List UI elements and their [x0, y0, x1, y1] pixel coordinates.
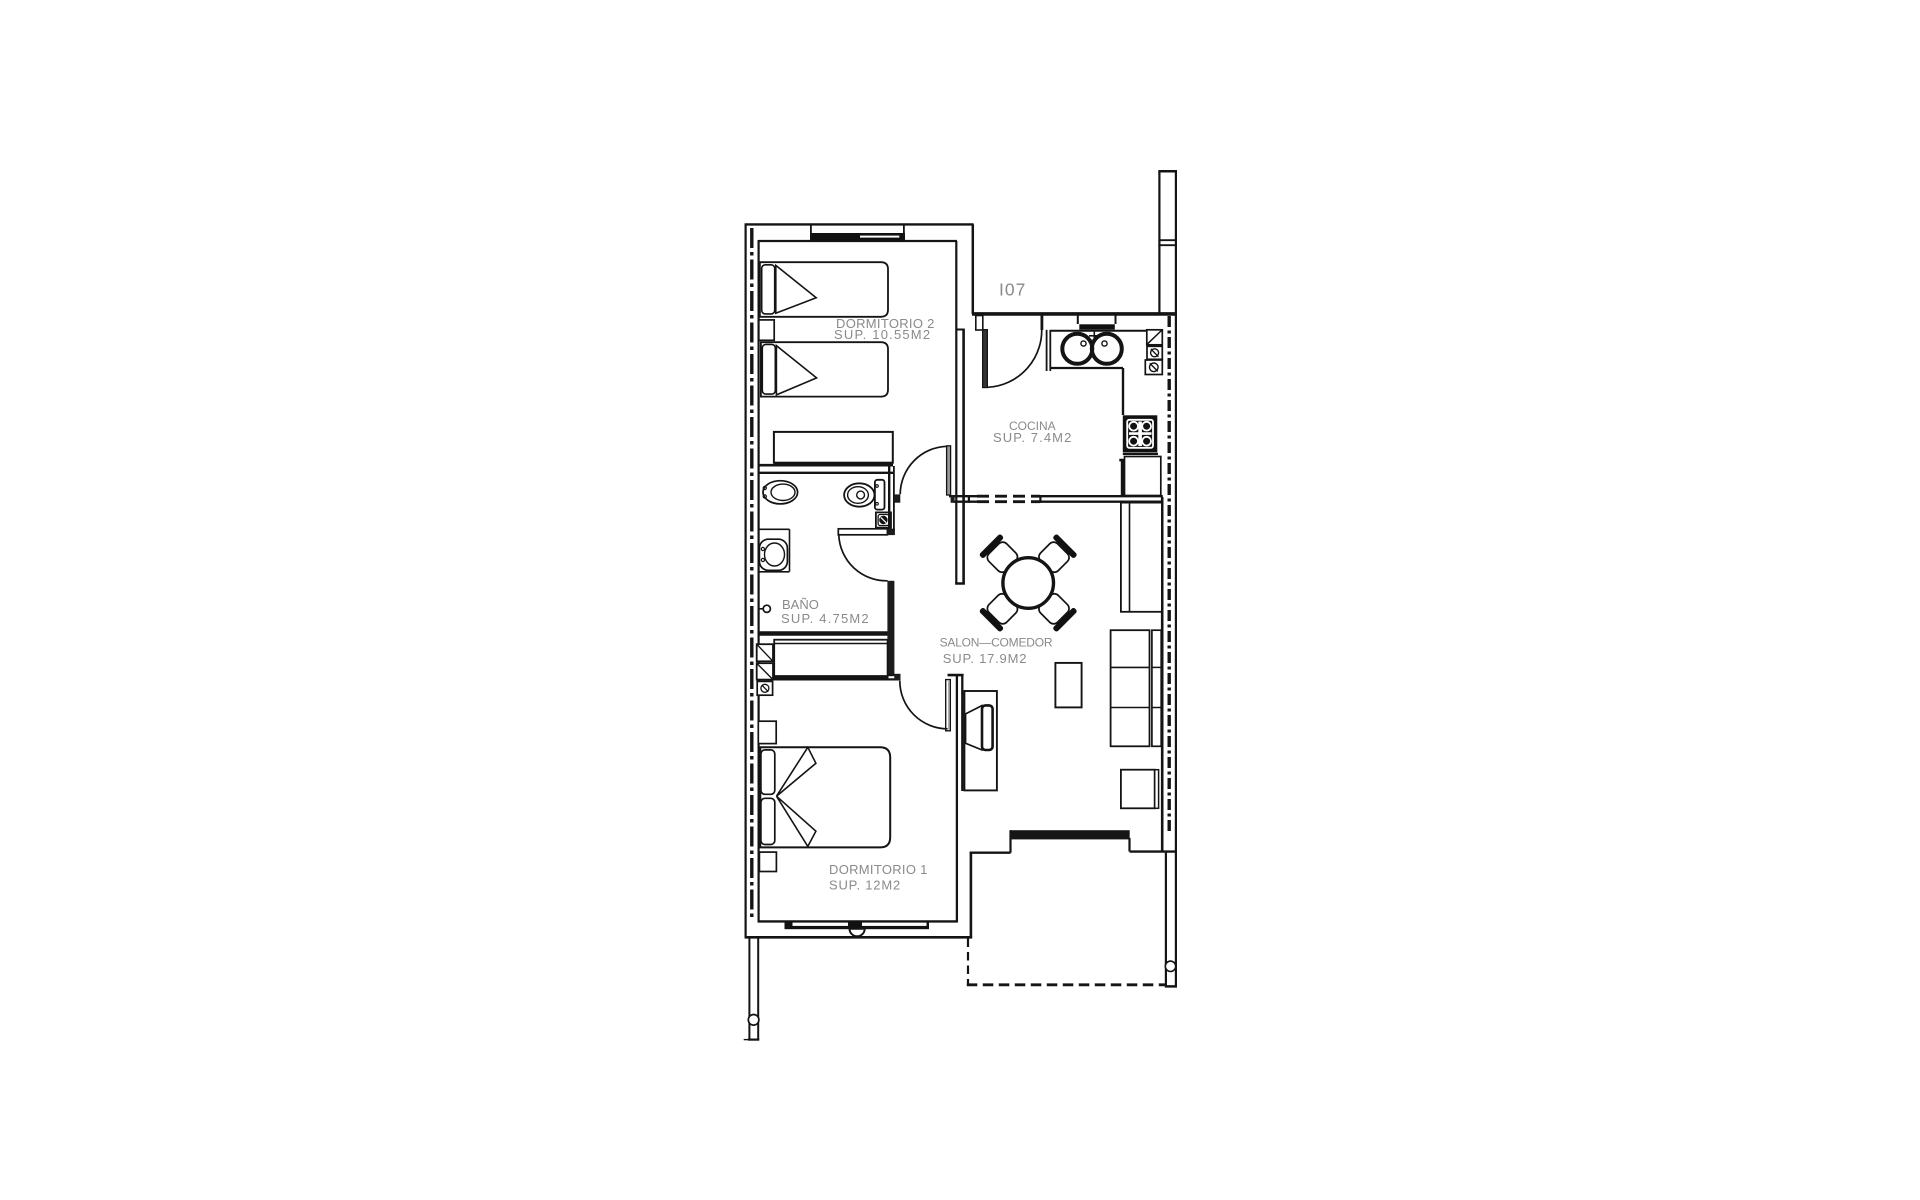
svg-text:I07: I07 — [999, 280, 1026, 300]
svg-text:SUP. 10.55M2: SUP. 10.55M2 — [834, 327, 931, 342]
svg-text:SALON—COMEDOR: SALON—COMEDOR — [940, 636, 1053, 650]
svg-text:DORMITORIO 1: DORMITORIO 1 — [829, 862, 928, 877]
svg-text:SUP. 4.75M2: SUP. 4.75M2 — [781, 611, 870, 626]
svg-text:SUP. 17.9M2: SUP. 17.9M2 — [943, 651, 1027, 666]
svg-text:SUP. 7.4M2: SUP. 7.4M2 — [993, 430, 1072, 445]
svg-text:BAÑO: BAÑO — [782, 597, 819, 612]
svg-text:SUP. 12M2: SUP. 12M2 — [829, 878, 901, 893]
